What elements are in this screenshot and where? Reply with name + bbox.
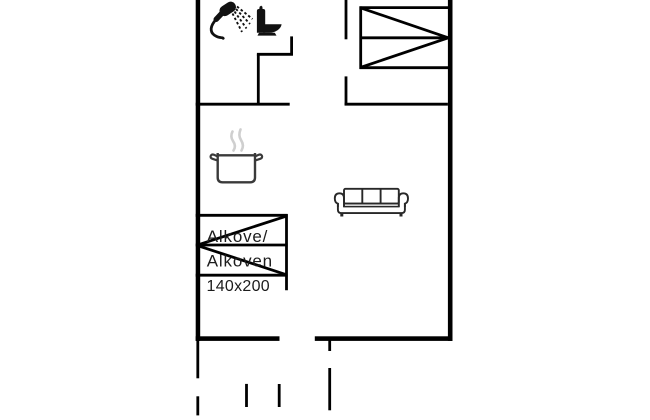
svg-text:Alkoven: Alkoven (207, 252, 273, 271)
svg-text:Alkove/: Alkove/ (207, 227, 268, 246)
svg-text:140x200: 140x200 (207, 278, 271, 295)
